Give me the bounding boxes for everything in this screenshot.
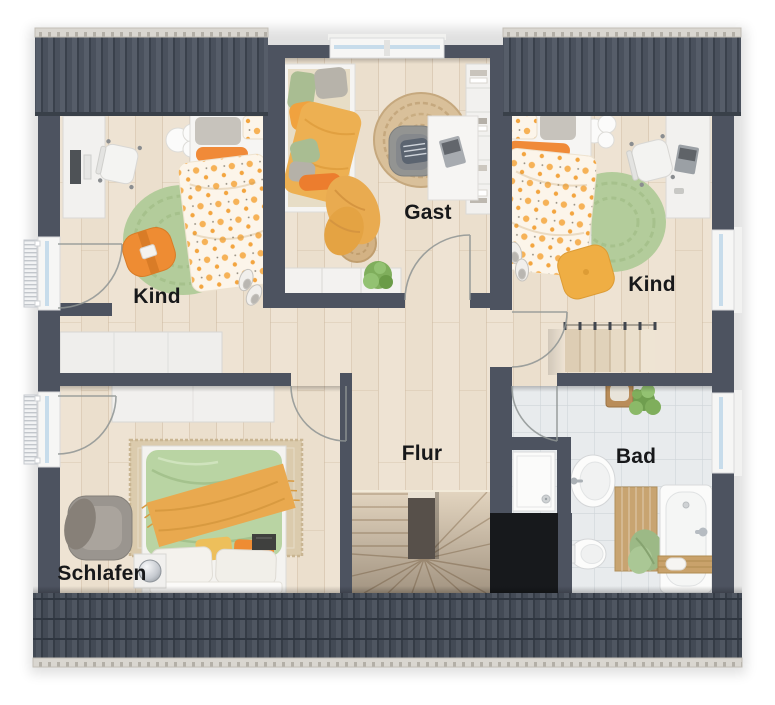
pillow [540, 112, 576, 140]
wall-exterior-left [38, 112, 60, 593]
book [252, 534, 276, 550]
stairwell-void [490, 513, 558, 593]
stair-steps [565, 329, 655, 372]
room-label-schlafen: Schlafen [57, 562, 146, 585]
shower [513, 452, 555, 511]
roof-bottom [33, 593, 742, 667]
wall-void-east [558, 513, 572, 593]
floor-plan-canvas: Kind Gast Kind Flur Bad Schlafen [0, 0, 775, 705]
flur-sideboard [60, 332, 222, 374]
roof-top-right [503, 28, 741, 116]
wall-flur-schlafen [38, 373, 291, 386]
window-gast-top [328, 34, 446, 58]
pillow [195, 117, 241, 145]
bath-caddy [658, 556, 714, 573]
wall-shower-partition [557, 437, 571, 513]
stair-newel-core [408, 492, 435, 559]
wall-exterior-right [712, 112, 734, 593]
room-label-bad: Bad [616, 445, 656, 468]
roof-top-left [35, 28, 268, 116]
winder-staircase [352, 491, 490, 593]
wall-flur-bad [557, 373, 712, 386]
desk [428, 116, 478, 200]
window-right-bad [712, 390, 742, 476]
floor-plan-svg: Kind Gast Kind Flur Bad Schlafen [0, 0, 775, 705]
wall-hung-toilet [569, 539, 606, 569]
pillow [314, 66, 349, 99]
room-label-gast: Gast [404, 201, 452, 224]
window-left-schlafen [24, 392, 60, 467]
wall-gast-south-left [263, 293, 405, 308]
armchair [59, 495, 132, 560]
radiator [24, 240, 37, 307]
room-label-kind-right: Kind [628, 273, 675, 296]
window-right-kind [712, 227, 742, 313]
radiator [24, 395, 37, 464]
room-label-flur: Flur [402, 442, 442, 465]
wall-gast-south-right [470, 293, 512, 308]
window-left-kind [24, 237, 60, 310]
rolled-towel [666, 558, 686, 570]
pillow [215, 549, 276, 585]
washbasin [571, 455, 616, 507]
room-label-kind-left: Kind [133, 285, 180, 308]
bathtub [658, 485, 714, 593]
monitor-icon [70, 150, 81, 184]
